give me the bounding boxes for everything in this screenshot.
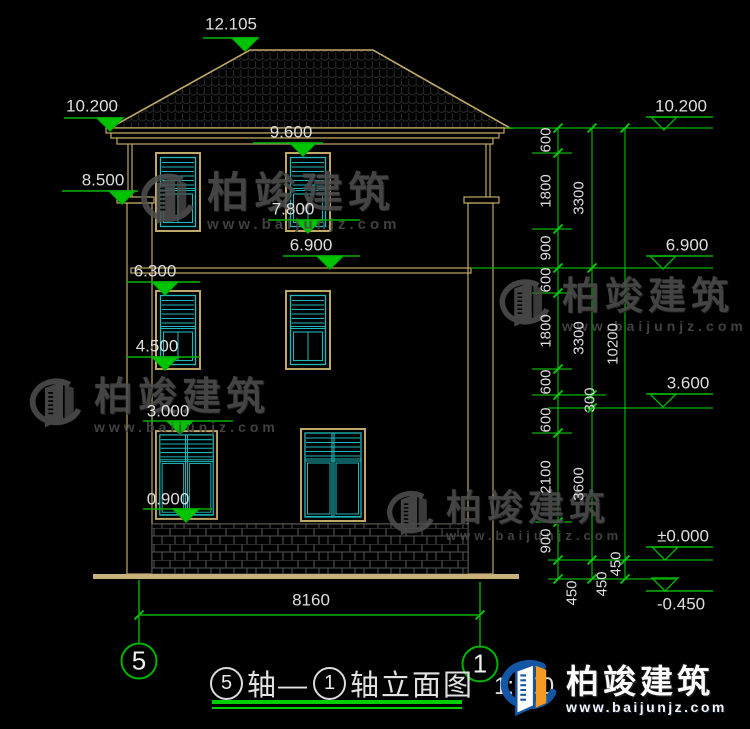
title-underline-thick (212, 700, 462, 704)
title-suffix: 轴立面图 (350, 662, 474, 704)
chain-dim: 600 (539, 407, 554, 432)
chain-dim: 3300 (572, 321, 587, 354)
brand-url: www.baijunjz.com (566, 699, 727, 715)
window-f2-mid (286, 291, 330, 369)
watermark-logo-icon (380, 484, 438, 548)
brand-logo: 柏竣建筑 www.baijunjz.com (492, 656, 727, 724)
title-axis-to: 1 (313, 667, 346, 700)
watermark: 柏竣建筑 www.baijunjz.com (133, 166, 400, 238)
level-label: 6.300 (134, 263, 177, 280)
axis-number-left: 5 (132, 646, 146, 677)
brand-name: 柏竣建筑 (566, 665, 727, 700)
level-label: 3.600 (667, 375, 710, 392)
watermark-brand: 柏竣建筑 (562, 278, 747, 316)
width-dimension: 8160 (292, 592, 330, 609)
chain-dim: 900 (539, 235, 554, 260)
level-label: 3.000 (147, 403, 190, 420)
level-label: ±0.000 (657, 528, 709, 545)
title-underline-thin (212, 707, 462, 709)
level-label: 6.900 (290, 237, 333, 254)
level-label: 6.900 (666, 237, 709, 254)
ground-line (93, 574, 519, 579)
level-label: 0.900 (147, 491, 190, 508)
chain-dim: 600 (539, 369, 554, 394)
chain-dim: 450 (565, 580, 580, 605)
title-connector: 轴— (247, 662, 309, 704)
chain-dim: 1800 (539, 174, 554, 207)
level-label: 4.500 (136, 338, 179, 355)
chain-dim: 1800 (539, 314, 554, 347)
watermark-logo-icon (22, 371, 86, 441)
watermark-url: www.baijunjz.com (446, 528, 622, 543)
chain-dim: 600 (539, 127, 554, 152)
level-label: 7.800 (272, 201, 315, 218)
chain-dim: 300 (583, 387, 598, 412)
level-markers-right (646, 117, 713, 591)
level-label: 10.200 (66, 98, 118, 115)
window-f1-mid (301, 429, 365, 521)
level-label: 9.600 (270, 124, 313, 141)
watermark-url: www.baijunjz.com (94, 419, 279, 435)
chain-dim: 450 (609, 551, 624, 576)
brand-logo-icon (492, 656, 560, 724)
level-label: -0.450 (657, 596, 705, 613)
title-axis-from: 5 (210, 667, 243, 700)
watermark-logo-icon (133, 166, 199, 238)
chain-dim: 3300 (572, 181, 587, 214)
level-label: 8.500 (82, 172, 125, 189)
level-label: 10.200 (655, 98, 707, 115)
watermark-brand: 柏竣建筑 (446, 490, 622, 526)
chain-dim: 2100 (539, 460, 554, 493)
chain-dim: 900 (539, 528, 554, 553)
level-label: 12.105 (205, 16, 257, 33)
watermark-url: www.baijunjz.com (562, 318, 747, 334)
chain-dim: 3600 (572, 467, 587, 500)
hip-roof (110, 50, 510, 128)
elevation-sheet: 柏竣建筑 www.baijunjz.com 柏竣建筑 www.baijunjz.… (0, 0, 750, 729)
chain-dim: 600 (539, 267, 554, 292)
chain-dim: 10200 (606, 323, 621, 365)
